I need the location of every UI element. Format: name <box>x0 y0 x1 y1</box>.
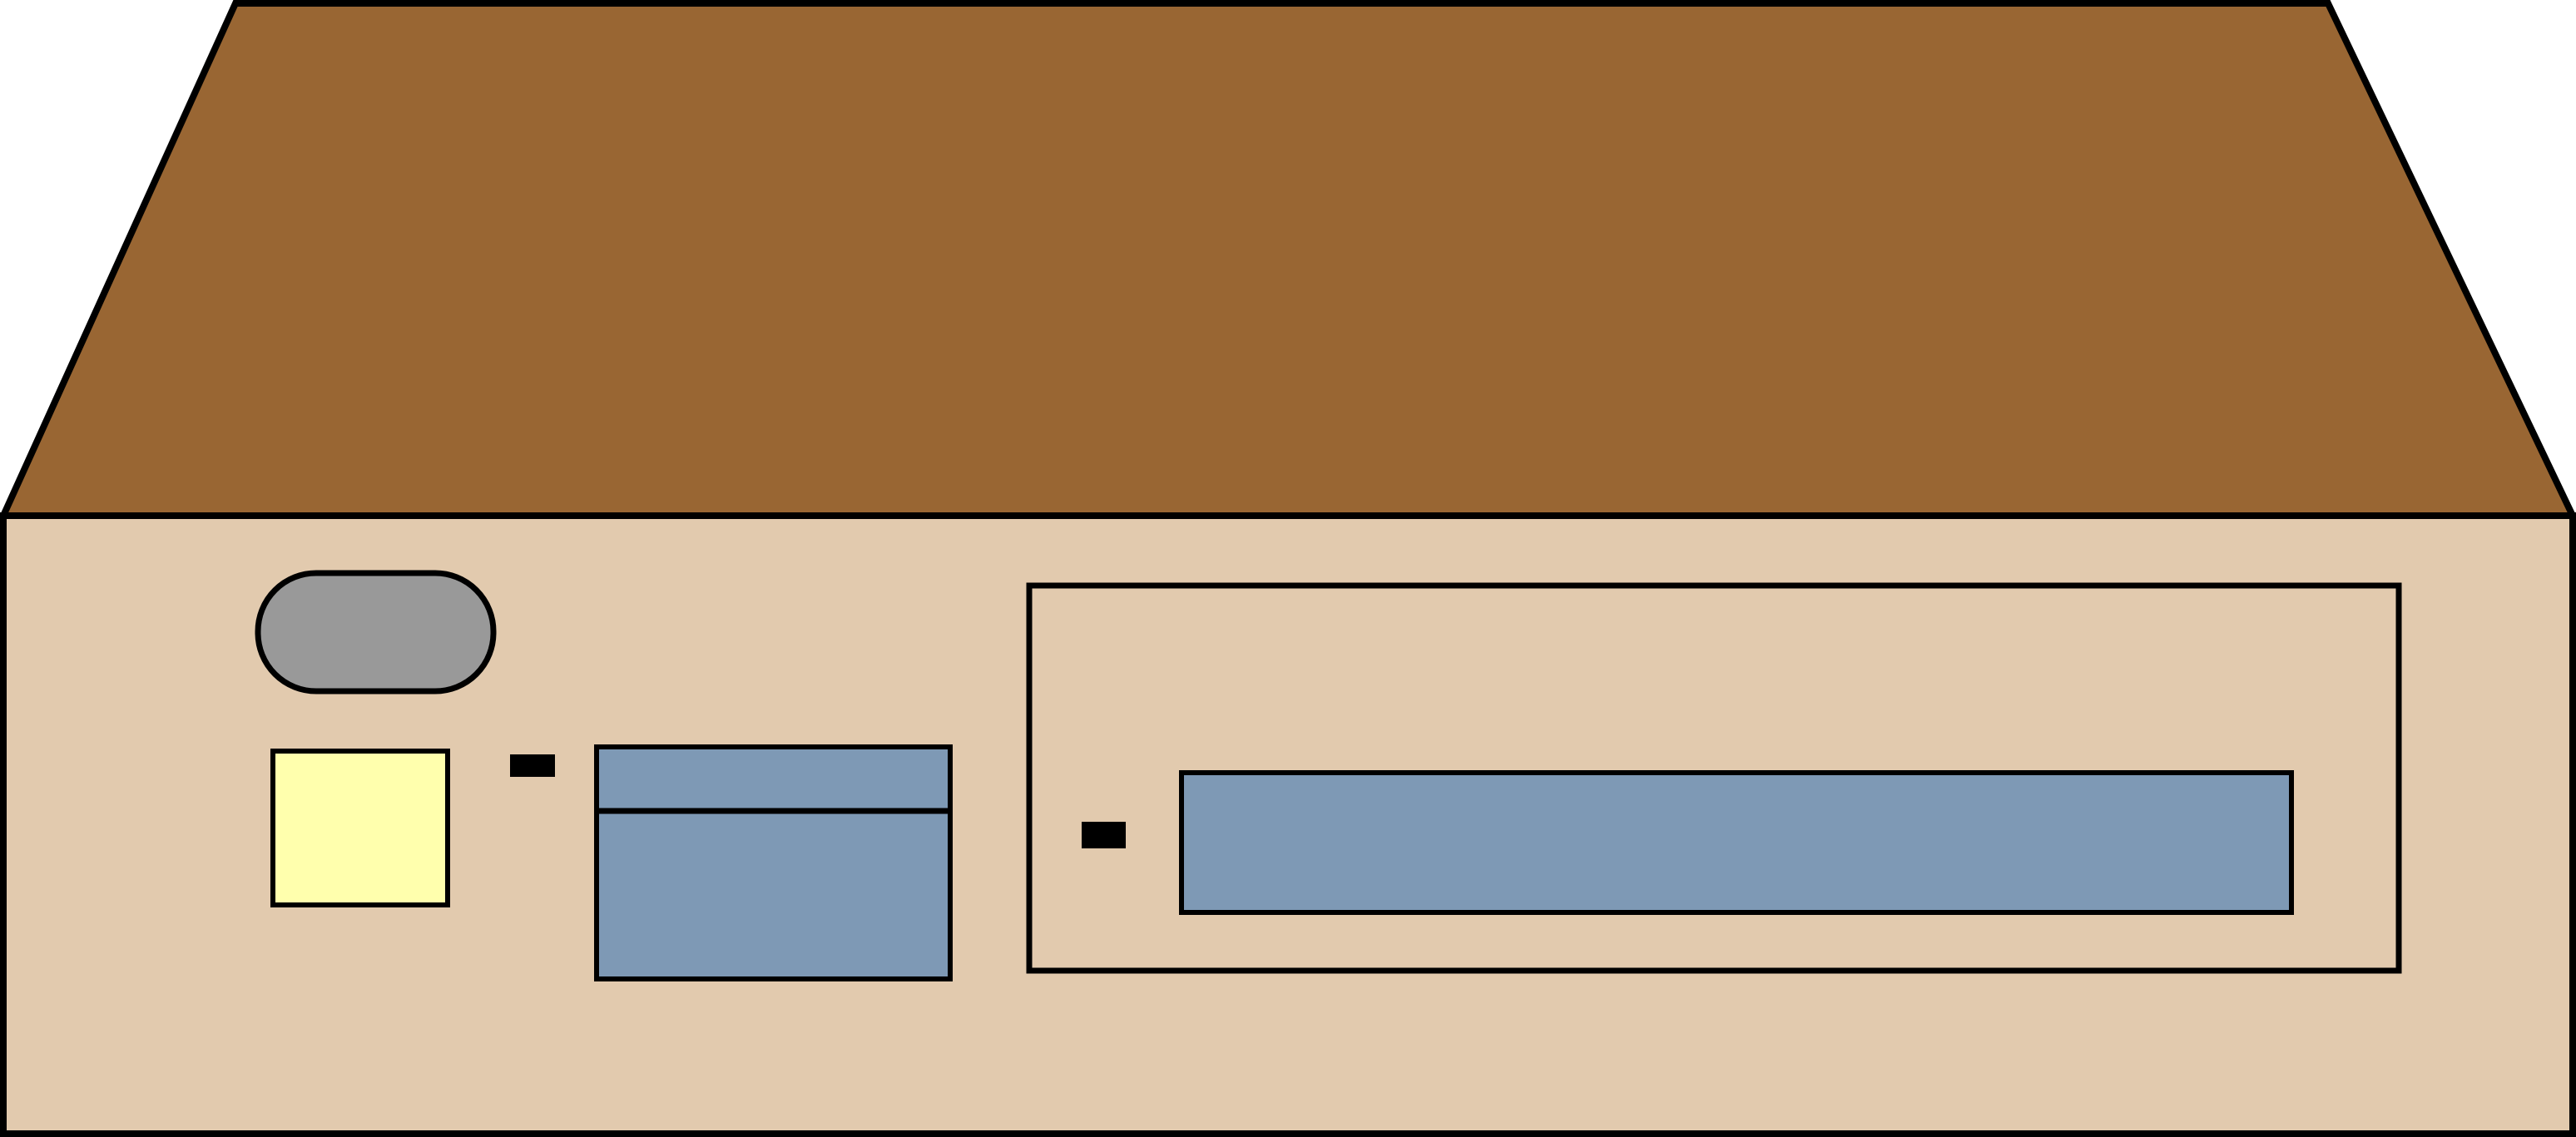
computer-illustration <box>0 0 2576 1137</box>
power-button <box>258 573 493 691</box>
scene-canvas <box>0 0 2576 1137</box>
cd-drive-slot <box>1181 773 2291 912</box>
led-indicator-right <box>1082 822 1126 848</box>
floppy-drive <box>597 747 950 979</box>
led-indicator-left <box>510 754 555 777</box>
yellow-button <box>273 751 448 905</box>
computer-top-cover <box>3 3 2573 516</box>
